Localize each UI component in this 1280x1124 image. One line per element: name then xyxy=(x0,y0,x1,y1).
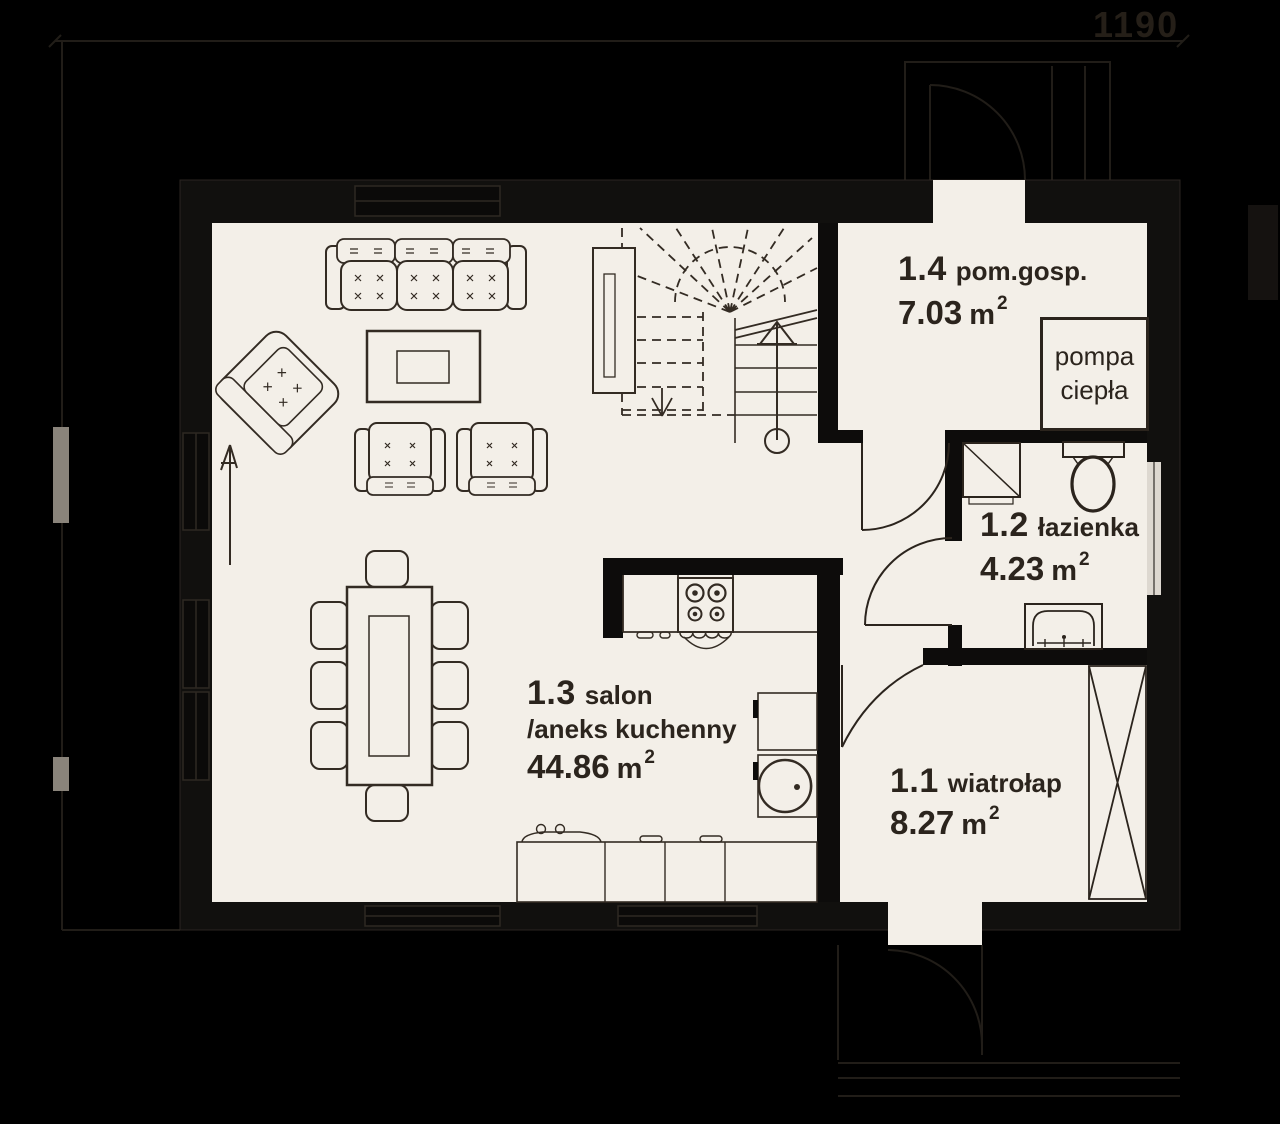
area-unit: m xyxy=(617,753,643,785)
dimension-label-top: 1190 xyxy=(1093,4,1179,46)
heat-pump-line2: ciepła xyxy=(1061,374,1129,408)
room-number: 1.1 xyxy=(890,762,939,800)
room-name: wiatrołap xyxy=(948,768,1062,798)
area-value: 7.03 xyxy=(898,294,962,331)
area-unit: m xyxy=(969,299,995,331)
room-label-lazienka: 1.2łazienka xyxy=(980,508,1139,542)
room-name: łazienka xyxy=(1038,512,1139,542)
room-area-wiatrolap: 8.27m2 xyxy=(890,806,998,840)
area-unit: m xyxy=(961,809,987,841)
room-number: 1.3 xyxy=(527,674,576,712)
room-area-lazienka: 4.23m2 xyxy=(980,552,1088,586)
room-name: pom.gosp. xyxy=(956,256,1087,286)
area-value: 4.23 xyxy=(980,550,1044,587)
area-unit: m xyxy=(1051,555,1077,587)
area-value: 44.86 xyxy=(527,748,610,785)
area-sup: 2 xyxy=(1079,549,1090,570)
area-sup: 2 xyxy=(997,293,1008,314)
area-sup: 2 xyxy=(644,747,655,768)
area-value: 8.27 xyxy=(890,804,954,841)
heat-pump-line1: pompa xyxy=(1055,340,1135,374)
room-label-salon: 1.3salon xyxy=(527,676,653,710)
heat-pump-box: pompa ciepła xyxy=(1040,317,1149,431)
area-sup: 2 xyxy=(989,803,1000,824)
room-name: salon xyxy=(585,680,653,710)
room-area-salon: 44.86m2 xyxy=(527,750,653,784)
floor-plan-page: 1.4pom.gosp. 7.03m2 1.2łazienka 4.23m2 1… xyxy=(0,0,1280,1124)
room-label-pomgosp: 1.4pom.gosp. xyxy=(898,252,1087,286)
room-label-wiatrolap: 1.1wiatrołap xyxy=(890,764,1062,798)
room-number: 1.4 xyxy=(898,250,947,288)
bathroom-window xyxy=(1147,462,1161,595)
room-name-extra: /aneks kuchenny xyxy=(527,714,737,744)
sofa xyxy=(326,239,526,310)
room-area-pomgosp: 7.03m2 xyxy=(898,296,1006,330)
room-label-salon-line2: /aneks kuchenny xyxy=(527,716,737,742)
room-number: 1.2 xyxy=(980,506,1029,544)
